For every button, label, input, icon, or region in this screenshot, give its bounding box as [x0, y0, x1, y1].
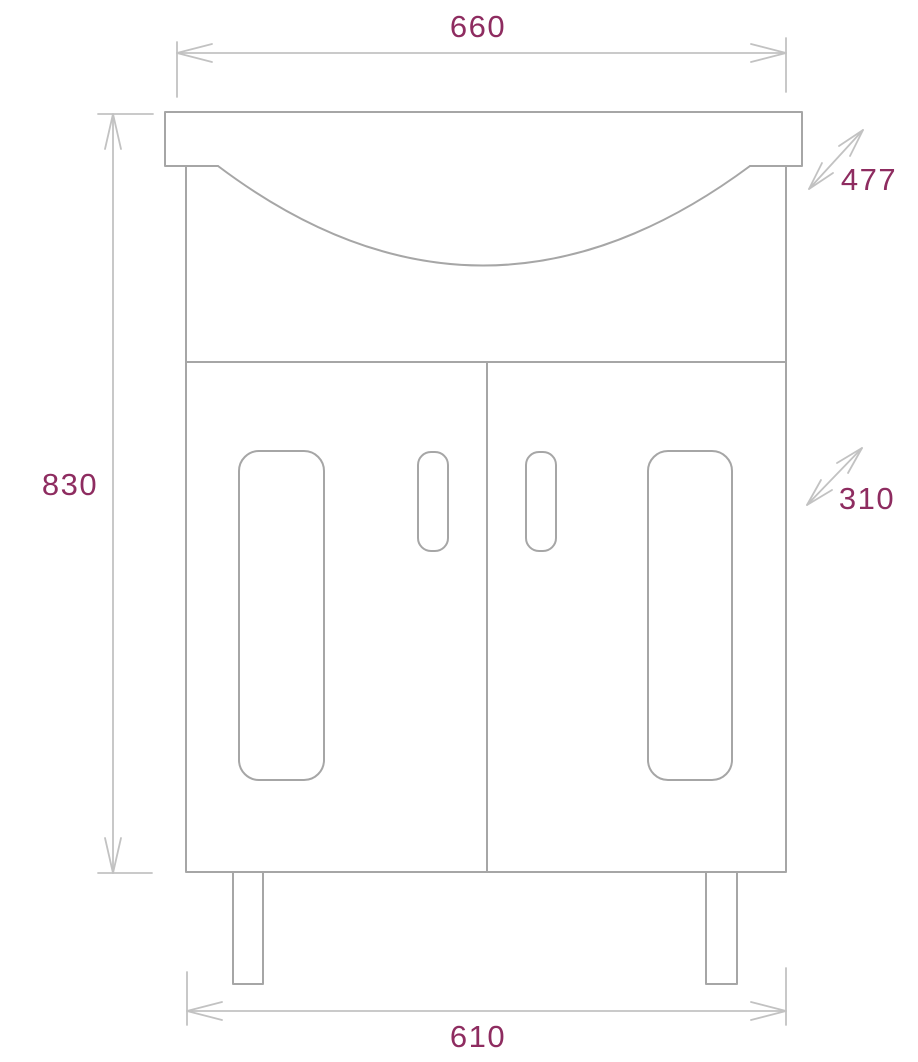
dim-top-width — [177, 38, 786, 97]
drawing-sheet: 660 477 830 310 610 — [0, 0, 918, 1062]
vanity-outline — [165, 112, 802, 984]
left-door-panel — [239, 451, 324, 780]
dim-label-basin-depth: 477 — [841, 162, 897, 197]
right-door-panel — [648, 451, 732, 780]
dim-bottom-width — [187, 968, 786, 1025]
left-leg — [233, 872, 263, 984]
basin-front-curve — [218, 166, 750, 266]
dim-height — [98, 114, 153, 873]
technical-drawing-canvas: 660 477 830 310 610 — [0, 0, 918, 1062]
basin-counter-top — [165, 112, 802, 166]
right-leg — [706, 872, 737, 984]
dim-label-bottom-width: 610 — [450, 1019, 506, 1054]
dim-label-cabinet-depth: 310 — [839, 481, 895, 516]
left-door-handle — [418, 452, 448, 551]
dim-label-height: 830 — [42, 467, 98, 502]
dimension-annotations — [98, 38, 863, 1025]
dim-label-top-width: 660 — [450, 9, 506, 44]
right-door-handle — [526, 452, 556, 551]
